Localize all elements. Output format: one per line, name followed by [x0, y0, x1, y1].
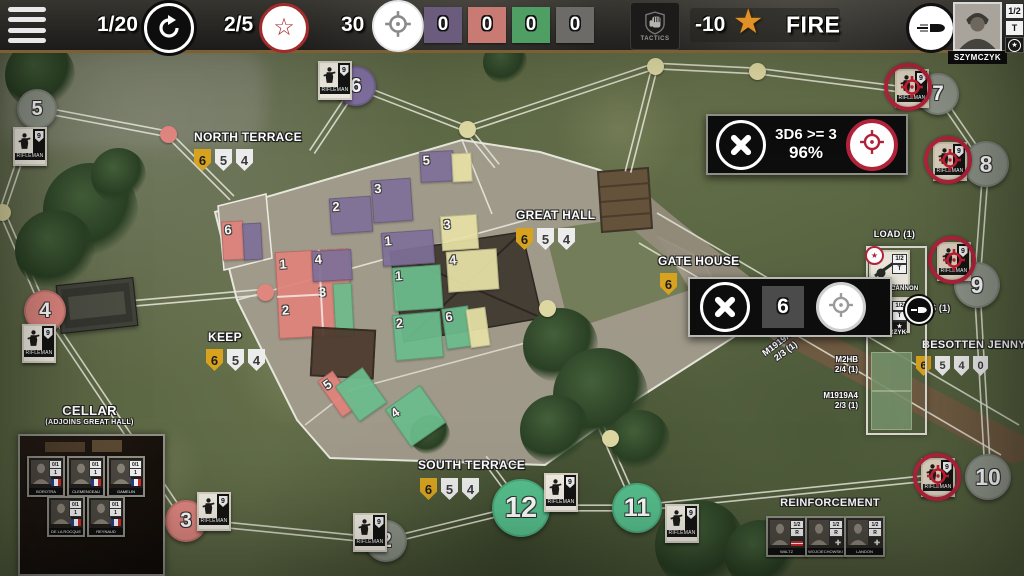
path-dot [749, 63, 766, 80]
defense-shields: 654 [516, 228, 575, 250]
mount-slot-1[interactable] [871, 352, 912, 391]
path-dot [160, 126, 177, 143]
map-node-12[interactable]: 12 [492, 479, 550, 537]
room-tile-1[interactable]: 1 [381, 229, 435, 267]
shield-badge: 4 [954, 356, 969, 376]
move-crosshair-icon [828, 292, 854, 323]
reinforcement-counter[interactable]: 1/2 R ✚ LANDON [844, 516, 885, 557]
shield-badge: 6 [206, 349, 223, 371]
target-counter-icon[interactable] [372, 0, 424, 52]
star-counter-icon[interactable]: ☆ [259, 3, 309, 53]
room-tile-5[interactable]: 5 [419, 150, 455, 183]
unit-portrait [848, 520, 868, 545]
map-node-11[interactable]: 11 [612, 483, 662, 533]
shield-badge: 0 [973, 356, 988, 376]
shield-badge: 5 [227, 349, 244, 371]
prisoner-counter[interactable]: 0/1 1 CLEMENCEAU [67, 456, 105, 497]
prisoner-counter[interactable]: 0/1 1 BOROTRA [27, 456, 65, 497]
defense-shields: 654 [194, 149, 253, 171]
room-tile[interactable] [451, 152, 472, 182]
shield-badge: 6 [516, 228, 533, 250]
french-flag-icon [91, 479, 101, 486]
top-toolbar: 1/20 2/5 ☆ 30 0000 TACTICS -10 ★ [0, 0, 1024, 53]
move-value: 6 [762, 286, 804, 328]
tracker-red[interactable]: 0 [468, 7, 506, 43]
room-tile[interactable] [242, 223, 263, 261]
soldier-icon [24, 326, 42, 350]
load-title: LOAD (1) [866, 229, 923, 239]
unit-counter[interactable]: 9 RIFLEMAN [353, 513, 387, 552]
vehicle [56, 277, 139, 334]
location-label: BESOTTEN JENNY [922, 339, 1024, 351]
shield-badge: 4 [248, 349, 265, 371]
attack-dialog: 3D6 >= 3 96% [706, 114, 908, 175]
tactics-button[interactable]: TACTICS [630, 2, 680, 50]
menu-icon[interactable] [8, 7, 46, 43]
path-dot [459, 121, 476, 138]
reinforcement-counter[interactable]: 1/2 R ✚ WOJCIECHOWSKI [805, 516, 846, 557]
fire-star-icon: ★ [733, 2, 763, 42]
location-label: SOUTH TERRACE [418, 458, 525, 472]
path-dot [647, 58, 664, 75]
tree [91, 148, 146, 203]
prisoner-portrait [31, 460, 51, 484]
reinforcement-counter[interactable]: 1/2 R WALTZ [766, 516, 807, 557]
cancel-move-button[interactable] [700, 282, 750, 332]
commander-ratio: 1/2 [1005, 3, 1024, 19]
room-tile-4[interactable]: 4 [311, 249, 353, 282]
soldier-icon [320, 63, 338, 87]
cellar-subtitle: (ADJOINS GREAT HALL) [18, 419, 161, 426]
shield-badge: 4 [558, 228, 575, 250]
path-dot [602, 430, 619, 447]
cellar-panel: 0/1 1 BOROTRA 0/1 1 CLEMENCEAU 0/1 1 GAM… [18, 434, 165, 576]
cellar-shelf [92, 440, 122, 452]
fist-icon [645, 11, 665, 35]
cellar-shelf [45, 442, 85, 452]
shield-badge: 5 [537, 228, 554, 250]
tree [15, 210, 95, 290]
unit-portrait [770, 520, 790, 545]
target-ring [924, 136, 972, 184]
ribbon-icon [791, 541, 803, 546]
location-label: KEEP [208, 330, 242, 344]
unit-counter[interactable]: 9 RIFLEMAN [318, 61, 352, 100]
ammo-count: 6 (1) [931, 303, 951, 313]
attack-roll: 3D6 >= 3 [774, 126, 838, 143]
cancel-attack-button[interactable] [716, 120, 766, 170]
path-dot [257, 284, 274, 301]
shield-badge: 4 [462, 478, 479, 500]
prisoner-portrait [91, 500, 111, 524]
location-label: GATE HOUSE [658, 254, 739, 268]
prisoner-counter[interactable]: 0/1 1 DE LA ROCQUE [47, 496, 85, 537]
soldier-icon [15, 129, 33, 153]
tracker-green[interactable]: 0 [512, 7, 550, 43]
tracker-purple[interactable]: 0 [424, 7, 462, 43]
crew-star-icon: ★ [865, 246, 884, 265]
tactics-label: TACTICS [640, 36, 669, 42]
cannon-stat-ratio: 1/2 [892, 254, 907, 264]
room-tile-4[interactable]: 4 [446, 248, 500, 292]
french-flag-icon [71, 519, 81, 526]
shield-badge: 6 [660, 273, 677, 295]
location-label: GREAT HALL [516, 208, 595, 222]
attack-chance: 96% [774, 143, 838, 163]
unit-portrait [809, 520, 829, 545]
morale-penalty: -10 [695, 13, 725, 37]
shield-badge: 6 [420, 478, 437, 500]
attack-crosshair-icon [859, 129, 885, 160]
confirm-move-button[interactable] [816, 282, 866, 332]
round-counter: 2/5 [224, 13, 253, 37]
commander-letter: T [1005, 20, 1024, 36]
room-tile-3[interactable]: 3 [371, 178, 414, 224]
cannon-stat-letter: T [892, 264, 907, 274]
commander-portrait[interactable] [953, 2, 1002, 51]
unit-counter[interactable]: 9 RIFLEMAN [22, 324, 56, 363]
ammo-counter: 30 [341, 13, 364, 37]
cellar-title: CELLAR [18, 403, 161, 418]
cross-icon: ✚ [874, 540, 880, 547]
room-tile-1[interactable]: 1 [392, 264, 444, 311]
french-flag-icon [131, 479, 141, 486]
room-tile-2[interactable]: 2 [392, 311, 444, 361]
cross-icon: ✚ [835, 540, 841, 547]
target-ring [884, 63, 932, 111]
mount-1-label: M2HB2/4 (1) [835, 355, 858, 375]
prisoner-portrait [71, 460, 91, 484]
french-flag-icon [111, 519, 121, 526]
tree [520, 395, 590, 465]
reinforcement-title: REINFORCEMENT [770, 497, 890, 509]
refresh-icon[interactable] [144, 3, 194, 53]
turn-counter: 1/20 [97, 13, 138, 37]
room-tile-2[interactable]: 2 [329, 196, 373, 235]
tracker-gray[interactable]: 0 [556, 7, 594, 43]
map-node-5[interactable]: 5 [17, 89, 57, 129]
unit-counter[interactable]: 9 RIFLEMAN [13, 127, 47, 166]
defense-shields: 654 [420, 478, 479, 500]
soldier-icon [199, 494, 217, 518]
commander-name: SZYMCZYK [948, 51, 1007, 64]
defense-shields: 654 [206, 349, 265, 371]
mount-slot-2[interactable] [871, 391, 912, 430]
prisoner-counter[interactable]: 0/1 1 REYNAUD [87, 496, 125, 537]
crosshair-icon [384, 10, 412, 43]
defense-shields: 6 [660, 273, 677, 295]
location-label: NORTH TERRACE [194, 130, 302, 144]
prisoner-portrait [111, 460, 131, 484]
map-node-10[interactable]: 10 [965, 454, 1011, 500]
shield-badge: 5 [935, 356, 950, 376]
unit-counter[interactable]: 9 RIFLEMAN [197, 492, 231, 531]
fire-label: FIRE [786, 12, 840, 39]
tree [610, 410, 670, 470]
prisoner-portrait [51, 500, 71, 524]
confirm-attack-button[interactable] [846, 119, 898, 171]
target-ring [913, 453, 961, 501]
unit-counter[interactable]: 9 RIFLEMAN [665, 504, 699, 543]
shield-badge: 4 [236, 149, 253, 171]
unit-counter[interactable]: 9 RIFLEMAN [544, 473, 578, 512]
ammo-bullet-icon[interactable] [905, 296, 933, 324]
shield-badge: 6 [194, 149, 211, 171]
shield-badge: 5 [215, 149, 232, 171]
target-ring [928, 236, 976, 284]
soldier-icon [355, 515, 373, 539]
french-flag-icon [51, 479, 61, 486]
move-dialog: 6 [688, 277, 892, 337]
soldier-icon [667, 506, 685, 530]
path-dot [539, 300, 556, 317]
commander-star-icon: ★ [1005, 37, 1024, 53]
prisoner-counter[interactable]: 0/1 1 GAMELIN [107, 456, 145, 497]
bullet-icon[interactable] [906, 3, 956, 53]
room-tile-3[interactable]: 3 [440, 214, 479, 251]
game-screen: 6235113412342654 NORTH TERRACE654GREAT H… [0, 0, 1024, 576]
mount-2-label: M1919A42/3 (1) [823, 391, 858, 411]
soldier-icon [546, 475, 564, 499]
shield-badge: 5 [441, 478, 458, 500]
